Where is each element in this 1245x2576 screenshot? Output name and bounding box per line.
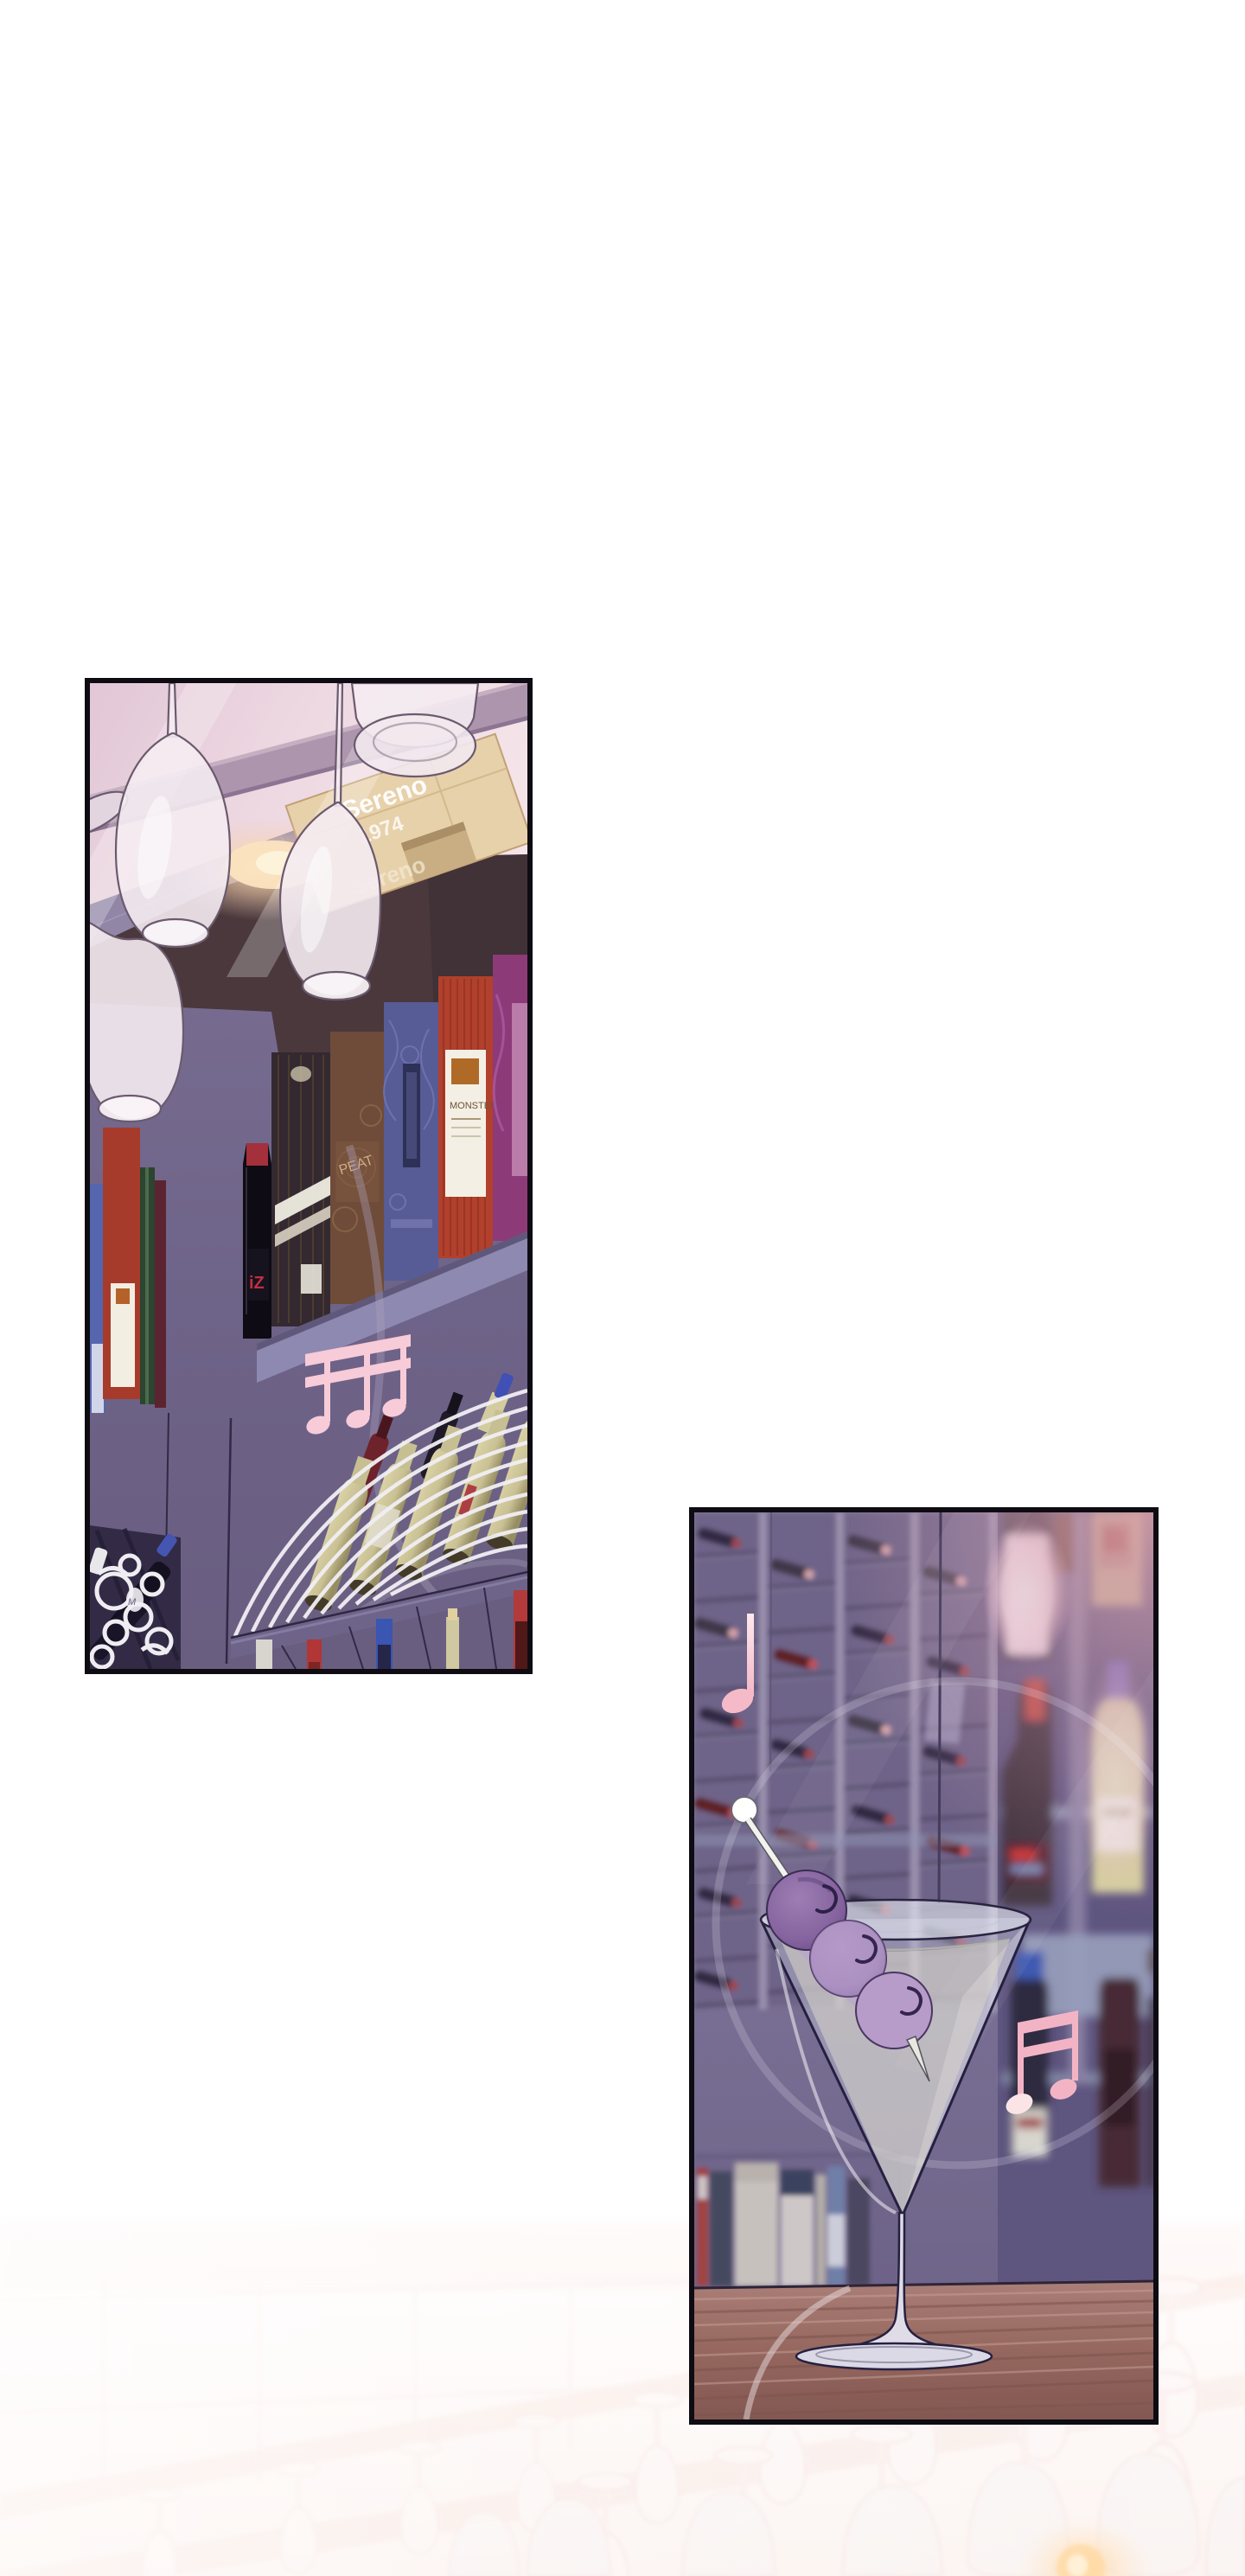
svg-text:iZ: iZ bbox=[249, 1274, 265, 1293]
svg-text:MONSTER: MONSTER bbox=[450, 1101, 497, 1111]
svg-text:M: M bbox=[128, 1597, 137, 1608]
